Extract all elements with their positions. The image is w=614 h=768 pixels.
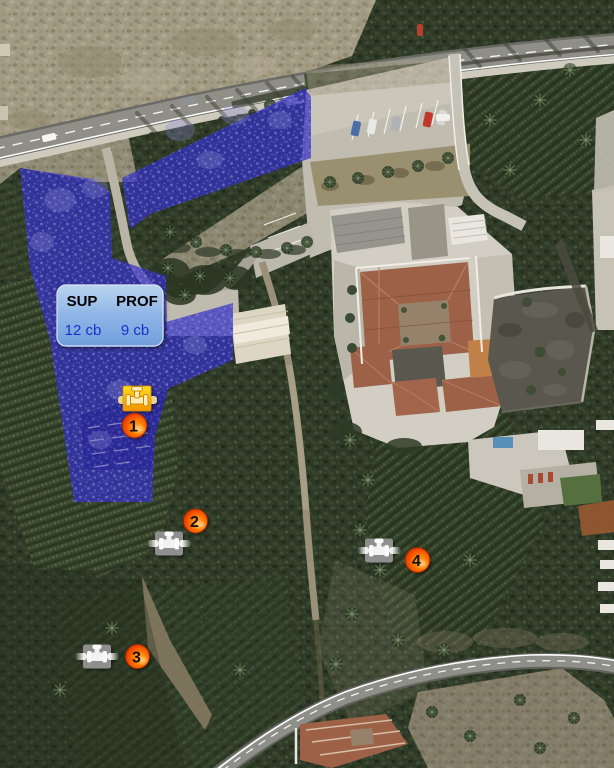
svg-text:PROF: PROF [116,293,158,310]
svg-text:3: 3 [132,650,141,667]
svg-text:9 cb: 9 cb [121,322,149,339]
svg-text:SUP: SUP [67,293,98,310]
svg-text:4: 4 [412,553,421,570]
svg-text:1: 1 [129,419,138,436]
svg-text:12 cb: 12 cb [65,322,102,339]
svg-text:2: 2 [190,514,199,531]
